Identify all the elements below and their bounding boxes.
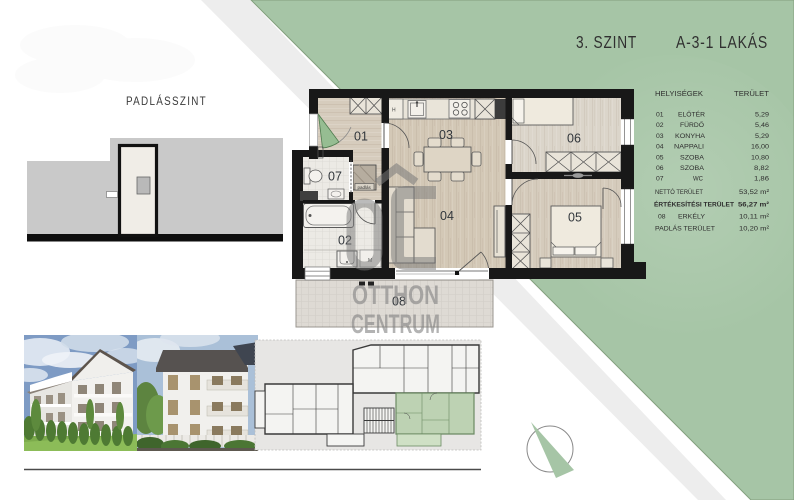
svg-text:03: 03 xyxy=(439,128,453,142)
svg-text:16,00: 16,00 xyxy=(751,144,769,151)
svg-text:06: 06 xyxy=(567,132,581,146)
svg-text:CENTRUM: CENTRUM xyxy=(351,309,440,339)
svg-text:05: 05 xyxy=(656,154,664,161)
svg-text:3. SZINT: 3. SZINT xyxy=(576,32,637,52)
svg-text:OTTHON: OTTHON xyxy=(352,280,439,310)
svg-text:08: 08 xyxy=(658,214,666,221)
svg-text:07: 07 xyxy=(328,170,342,184)
svg-text:01: 01 xyxy=(354,130,368,144)
svg-text:NAPPALI: NAPPALI xyxy=(674,144,704,151)
svg-text:10,80: 10,80 xyxy=(751,154,769,161)
svg-text:04: 04 xyxy=(440,209,454,223)
svg-text:ERKÉLY: ERKÉLY xyxy=(678,212,705,221)
svg-text:5,29: 5,29 xyxy=(755,133,769,140)
svg-text:PADLÁSSZINT: PADLÁSSZINT xyxy=(126,95,207,108)
svg-text:H: H xyxy=(392,108,396,114)
svg-text:A-3-1 LAKÁS: A-3-1 LAKÁS xyxy=(676,32,768,52)
svg-text:8,82: 8,82 xyxy=(754,165,769,172)
svg-text:HELYISÉGEK: HELYISÉGEK xyxy=(655,89,703,98)
svg-text:01: 01 xyxy=(656,112,664,119)
svg-text:5,46: 5,46 xyxy=(755,122,769,129)
svg-text:1,86: 1,86 xyxy=(754,176,769,183)
svg-text:10,20 m²: 10,20 m² xyxy=(739,226,770,233)
svg-text:SZOBA: SZOBA xyxy=(680,154,704,161)
svg-text:05: 05 xyxy=(568,211,582,225)
svg-text:56,27 m²: 56,27 m² xyxy=(738,202,770,209)
svg-text:07: 07 xyxy=(656,176,664,183)
svg-text:ÉRTÉKESÍTÉSI TERÜLET: ÉRTÉKESÍTÉSI TERÜLET xyxy=(654,200,735,209)
svg-text:53,52 m²: 53,52 m² xyxy=(739,189,770,196)
svg-text:NETTÓ TERÜLET: NETTÓ TERÜLET xyxy=(655,187,703,196)
svg-text:04: 04 xyxy=(656,144,664,151)
svg-text:SZOBA: SZOBA xyxy=(680,165,704,172)
svg-text:WC: WC xyxy=(693,176,703,183)
svg-text:ELŐTÉR: ELŐTÉR xyxy=(678,110,705,119)
svg-text:06: 06 xyxy=(656,165,664,172)
svg-text:03: 03 xyxy=(656,133,664,140)
svg-text:PADLÁS TERÜLET: PADLÁS TERÜLET xyxy=(655,224,715,233)
svg-text:KONYHA: KONYHA xyxy=(675,133,705,140)
svg-text:10,11 m²: 10,11 m² xyxy=(739,214,770,221)
svg-text:5,29: 5,29 xyxy=(755,112,769,119)
svg-text:02: 02 xyxy=(656,122,664,129)
svg-text:FÜRDŐ: FÜRDŐ xyxy=(680,120,704,129)
svg-text:padlás: padlás xyxy=(358,185,372,190)
svg-text:TERÜLET: TERÜLET xyxy=(734,90,770,98)
